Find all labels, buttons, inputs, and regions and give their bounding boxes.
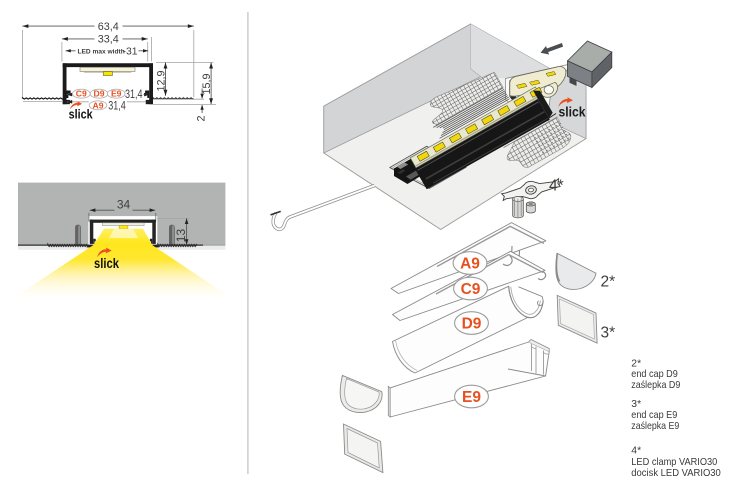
svg-text:end cap E9: end cap E9 (631, 410, 677, 421)
svg-text:C9: C9 (76, 89, 87, 99)
svg-text:4*: 4* (549, 178, 564, 195)
svg-text:12,9: 12,9 (156, 70, 168, 91)
svg-text:E9: E9 (111, 89, 122, 99)
svg-text:31,4: 31,4 (108, 98, 126, 112)
svg-text:docisk LED VARIO30: docisk LED VARIO30 (631, 468, 721, 479)
svg-text:D9: D9 (462, 315, 482, 332)
svg-text:34: 34 (117, 198, 131, 212)
svg-text:15,9: 15,9 (201, 73, 213, 94)
svg-text:3*: 3* (631, 399, 641, 410)
svg-text:end cap D9: end cap D9 (631, 369, 678, 380)
svg-text:E9: E9 (462, 389, 481, 406)
svg-text:slick: slick (559, 105, 586, 120)
svg-text:A9: A9 (460, 255, 480, 272)
svg-text:LED max width: LED max width (78, 48, 125, 55)
svg-text:4*: 4* (631, 446, 641, 457)
svg-text:slick: slick (94, 255, 119, 271)
svg-text:A9: A9 (93, 100, 104, 110)
svg-text:33,4: 33,4 (98, 34, 119, 46)
svg-text:LED clamp VARIO30: LED clamp VARIO30 (631, 457, 717, 468)
svg-text:D9: D9 (94, 89, 105, 99)
svg-text:2: 2 (196, 115, 208, 121)
svg-text:63,4: 63,4 (98, 21, 119, 33)
svg-text:3*: 3* (601, 325, 616, 342)
svg-text:31,4: 31,4 (125, 87, 143, 101)
svg-text:2*: 2* (601, 274, 616, 291)
svg-text:2*: 2* (631, 358, 641, 369)
svg-text:C9: C9 (461, 281, 481, 298)
svg-text:-31: -31 (123, 46, 138, 57)
svg-text:slick: slick (69, 107, 94, 122)
svg-text:zaślepka D9: zaślepka D9 (631, 380, 680, 391)
svg-text:13: 13 (174, 229, 188, 243)
svg-text:zaślepka E9: zaślepka E9 (631, 421, 679, 432)
